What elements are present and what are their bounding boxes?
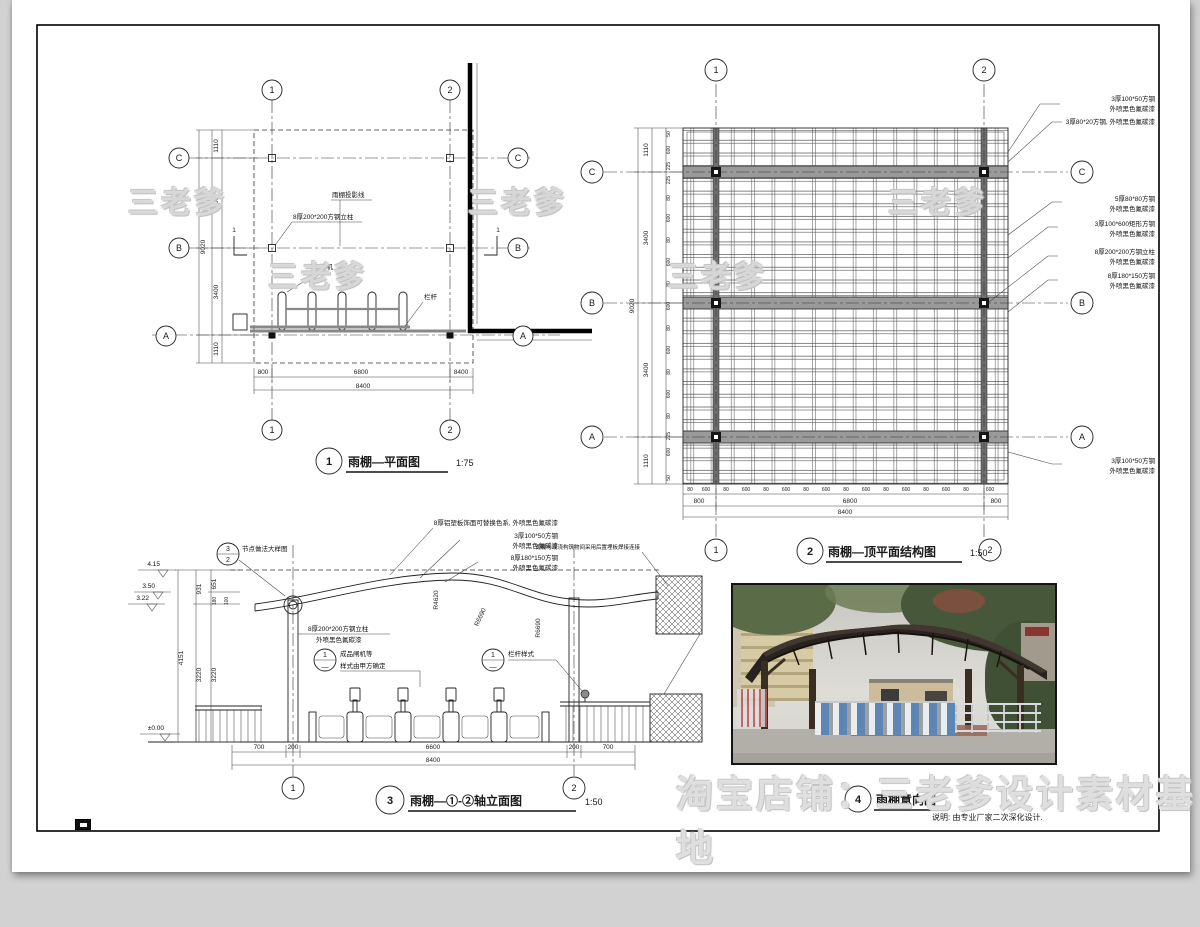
annotation: 3厚80*20方钢, 外喷黑色氟碳漆 xyxy=(1066,117,1156,126)
dim-label: 3400 xyxy=(643,230,650,245)
level-label: 3.22 xyxy=(136,595,149,602)
dim-label: 600 xyxy=(742,487,751,493)
level-label: ±0.00 xyxy=(148,725,165,732)
dim-label: 1110 xyxy=(643,143,650,157)
annotation: 5厚80*80方钢 xyxy=(1115,194,1156,203)
dim-label: 800 xyxy=(694,498,705,505)
axis-bubble: 1 xyxy=(269,425,274,435)
column-label-elev: 8厚200*200方钢立柱 外喷黑色氟碳漆 xyxy=(298,624,390,644)
dim-label: 50 xyxy=(666,475,672,481)
dim-label: 600 xyxy=(822,487,831,493)
detail-ref-bottom: — xyxy=(322,664,329,671)
annotation: 外喷黑色氟碳漆 xyxy=(1110,281,1156,290)
reference-photo xyxy=(731,583,1057,765)
svg-text:1: 1 xyxy=(232,227,236,234)
view-scale: 1:75 xyxy=(456,458,474,468)
structure-left-dims: 1110 3400 9020 3400 1110 50 600 225 225 … xyxy=(629,128,683,484)
sheet-logo xyxy=(75,819,91,830)
dim-label: 225 xyxy=(666,432,672,441)
svg-text:1: 1 xyxy=(496,227,500,234)
dim-label: 600 xyxy=(666,390,672,399)
dim-label: 700 xyxy=(254,744,265,751)
radius-label: R6690 xyxy=(535,618,542,638)
annotation: 3厚100*50方钢 xyxy=(1111,94,1155,103)
photo-railing xyxy=(955,703,1041,733)
brand-watermark: 三老爹 xyxy=(468,178,567,222)
dim-label: 600 xyxy=(702,487,711,493)
axis-bubble: A xyxy=(163,331,169,341)
viewer-canvas: 1110 3400 9020 3400 1110 800 6800 8400 8… xyxy=(0,0,1200,927)
gate-label: 成品闸机等 xyxy=(340,649,373,658)
dim-label: 931 xyxy=(196,583,203,594)
axis-bubble: B xyxy=(515,243,521,253)
level-label: 4.15 xyxy=(147,561,160,568)
axis-bubble: 2 xyxy=(987,545,992,555)
dim-label: 1110 xyxy=(213,139,220,153)
dim-label: 3220 xyxy=(211,667,218,682)
dim-label: 3220 xyxy=(196,667,203,682)
dim-label: 80 xyxy=(963,487,969,493)
axis-bubble: 1 xyxy=(713,545,718,555)
dim-label: 180 xyxy=(212,597,218,606)
dim-label: 6600 xyxy=(426,744,441,751)
dim-label: 651 xyxy=(211,578,218,589)
dim-label: 80 xyxy=(666,369,672,375)
annotation: 3厚100*600矩形方钢 xyxy=(1095,219,1156,228)
level-marks: 4.15 3.50 3.22 ±0.00 xyxy=(128,561,180,741)
axis-bubble: 2 xyxy=(447,85,452,95)
dim-label: 600 xyxy=(666,302,672,311)
dim-label: 80 xyxy=(666,195,672,201)
annotation: 外喷黑色氟碳漆 xyxy=(1110,257,1156,266)
dim-label: 225 xyxy=(666,176,672,185)
axis-bubble: 1 xyxy=(290,783,295,793)
elevation-bottom-dims: 700 200 6600 200 700 8400 xyxy=(232,744,635,770)
radius-label: R4620 xyxy=(433,590,440,610)
view-number: 2 xyxy=(807,546,813,558)
dim-label: 600 xyxy=(862,487,871,493)
axis-bubble: B xyxy=(1079,298,1085,308)
view-number: 1 xyxy=(326,456,332,468)
annotation: 外喷黑色氟碳漆 xyxy=(1110,204,1156,213)
dim-label: 50 xyxy=(666,131,672,137)
dim-label: 80 xyxy=(763,487,769,493)
canopy-roof-profile xyxy=(255,573,658,614)
dim-label: 600 xyxy=(666,214,672,223)
dim-label: 80 xyxy=(803,487,809,493)
elevation-top-labels: 8厚铝塑板饰面可替换色系, 外喷黑色氟碳漆 3厚100*50方钢 外喷黑色氟碳漆… xyxy=(390,518,559,582)
dim-label: 6800 xyxy=(354,369,369,376)
node-detail-callout: 3 2 节点做法大样图 xyxy=(217,543,288,596)
annotation: 外喷黑色氟碳漆 xyxy=(1110,104,1156,113)
annotation: 外喷黑色氟碳漆 xyxy=(1110,466,1156,475)
view-title: 雨棚—平面图 xyxy=(348,454,420,469)
annotation: 外喷黑色氟碳漆 xyxy=(1110,229,1156,238)
dim-label: 9020 xyxy=(629,298,636,313)
connection-note: 雨棚与现浇构筑物间采用后置埋板焊接连接 xyxy=(535,543,640,551)
axis-bubble: C xyxy=(515,153,522,163)
dim-label: 200 xyxy=(288,744,299,751)
view-title: 雨棚—①-②轴立面图 xyxy=(410,793,522,808)
axis-bubble: 1 xyxy=(269,85,274,95)
roof-structure-drawing: 1110 3400 9020 3400 1110 50 600 225 225 … xyxy=(581,59,1156,564)
column-label: 8厚200*200方钢立柱 xyxy=(293,212,354,221)
wall-hatch-upper xyxy=(656,576,702,634)
axis-bubble: 2 xyxy=(571,783,576,793)
dim-label: 1110 xyxy=(643,454,650,468)
dim-label: 600 xyxy=(666,146,672,155)
left-railing xyxy=(195,706,262,742)
dim-label: 4151 xyxy=(178,650,185,665)
dim-label: 200 xyxy=(569,744,580,751)
dim-label: 3400 xyxy=(643,362,650,377)
dim-label: 80 xyxy=(923,487,929,493)
axis-bubble: A xyxy=(1079,432,1085,442)
dim-label: 600 xyxy=(902,487,911,493)
dim-label: 8400 xyxy=(838,509,853,516)
plan-title: 1 雨棚—平面图 1:75 xyxy=(316,448,474,474)
detail-ref-bottom: — xyxy=(490,664,497,671)
structure-bottom-dims: 80 600 80 600 80 600 80 600 80 600 80 60… xyxy=(683,484,1008,520)
structure-annotations: 3厚100*50方钢 外喷黑色氟碳漆 3厚80*20方钢, 外喷黑色氟碳漆 5厚… xyxy=(989,94,1156,475)
annotation: 8厚200*200方钢立柱 xyxy=(1095,247,1156,256)
dim-label: 80 xyxy=(666,325,672,331)
dim-label: 800 xyxy=(258,369,269,376)
store-watermark: 淘宝店铺：三老爹设计素材基地 xyxy=(676,764,1200,872)
turnstiles-elevation xyxy=(309,688,549,742)
dim-label: 1110 xyxy=(213,342,220,356)
axis-bubble: C xyxy=(1079,167,1086,177)
view-number: 3 xyxy=(387,795,393,807)
axis-bubble: 1 xyxy=(713,65,718,75)
dim-label: 80 xyxy=(883,487,889,493)
dim-label: 600 xyxy=(942,487,951,493)
dim-label: 80 xyxy=(666,413,672,419)
brand-watermark: 三老爹 xyxy=(268,252,367,296)
dim-label: 6800 xyxy=(843,498,858,505)
dim-label: 600 xyxy=(986,487,995,493)
axis-bubble: C xyxy=(589,167,596,177)
projection-label: 雨棚投影线 xyxy=(332,190,365,199)
detail-ref-top: 3 xyxy=(226,546,230,553)
axis-bubble: B xyxy=(589,298,595,308)
dim-label: 600 xyxy=(782,487,791,493)
elevation-drawing: 4.15 3.50 3.22 ±0.00 931 651 180 xyxy=(128,518,702,814)
axis-bubble: A xyxy=(520,331,526,341)
radius-label: R6690 xyxy=(473,607,488,628)
axis-bubble: 2 xyxy=(981,65,986,75)
dim-label: 600 xyxy=(666,346,672,355)
dim-label: 600 xyxy=(666,448,672,457)
detail-ref-top: 1 xyxy=(323,652,327,659)
dim-label: 3400 xyxy=(213,284,220,299)
dim-label: 8400 xyxy=(454,369,469,376)
annotation: 8厚180*150方钢 xyxy=(1108,271,1156,280)
railing-label: 栏杆 xyxy=(424,292,438,301)
column-spec: 8厚200*200方钢立柱 xyxy=(308,624,369,633)
axis-bubble: 2 xyxy=(447,425,452,435)
gate-detail-callout: 1 — 成品闸机等 样式由甲方确定 xyxy=(314,649,420,687)
level-label: 3.50 xyxy=(142,583,155,590)
detail-ref-top: 1 xyxy=(491,652,495,659)
section-mark-1: 1 1 xyxy=(232,227,500,255)
view-scale: 1:50 xyxy=(585,797,603,807)
right-railing xyxy=(560,690,650,742)
dim-label: 80 xyxy=(666,237,672,243)
annotation: 3厚100*50方钢 xyxy=(1111,456,1155,465)
railing-detail-callout: 1 — 栏杆样式 xyxy=(482,649,583,692)
plan-bottom-dims: 800 6800 8400 8400 8400 xyxy=(254,368,473,394)
roof-material-label: 8厚铝塑板饰面可替换色系, 外喷黑色氟碳漆 xyxy=(434,518,559,527)
axis-bubble: C xyxy=(176,153,183,163)
gate-label: 样式由甲方确定 xyxy=(340,661,386,670)
dim-label: 700 xyxy=(603,744,614,751)
steel-label: 8厚180*150方钢 xyxy=(511,553,559,562)
axis-bubble: A xyxy=(589,432,595,442)
brand-watermark: 三老爹 xyxy=(668,252,767,296)
brand-watermark: 三老爹 xyxy=(128,178,227,222)
structure-title: 2 雨棚—顶平面结构图 1:50 xyxy=(797,538,988,564)
node-callout-label: 节点做法大样图 xyxy=(242,544,288,553)
dim-label: 80 xyxy=(723,487,729,493)
dim-label: 100 xyxy=(224,597,230,606)
view-title: 雨棚—顶平面结构图 xyxy=(828,544,936,559)
dim-label: 8400 xyxy=(356,383,371,390)
axis-bubble: B xyxy=(176,243,182,253)
dim-label: 225 xyxy=(666,162,672,171)
detail-ref-bottom: 2 xyxy=(226,557,230,564)
wall-hatch-lower xyxy=(650,694,702,742)
view-scale: 1:50 xyxy=(970,548,988,558)
elevation-left-dims: 931 651 180 100 4151 3220 3220 xyxy=(175,570,240,742)
dim-label: 9020 xyxy=(200,239,207,254)
column-spec: 外喷黑色氟碳漆 xyxy=(316,635,362,644)
railing-label: 栏杆样式 xyxy=(508,649,535,658)
dim-label: 80 xyxy=(843,487,849,493)
dim-label: 800 xyxy=(991,498,1002,505)
dim-label: 80 xyxy=(687,487,693,493)
turnstile-row-photo xyxy=(815,701,955,735)
dim-label: 8400 xyxy=(426,757,441,764)
steel-label: 外喷黑色氟碳漆 xyxy=(513,563,559,572)
brand-watermark: 三老爹 xyxy=(888,178,987,222)
plan-left-dims: 1110 3400 9020 3400 1110 xyxy=(196,130,258,363)
plan-view-drawing: 1110 3400 9020 3400 1110 800 6800 8400 8… xyxy=(152,63,592,474)
steel-label: 3厚100*50方钢 xyxy=(514,531,558,540)
left-barrier-gate xyxy=(737,689,767,727)
